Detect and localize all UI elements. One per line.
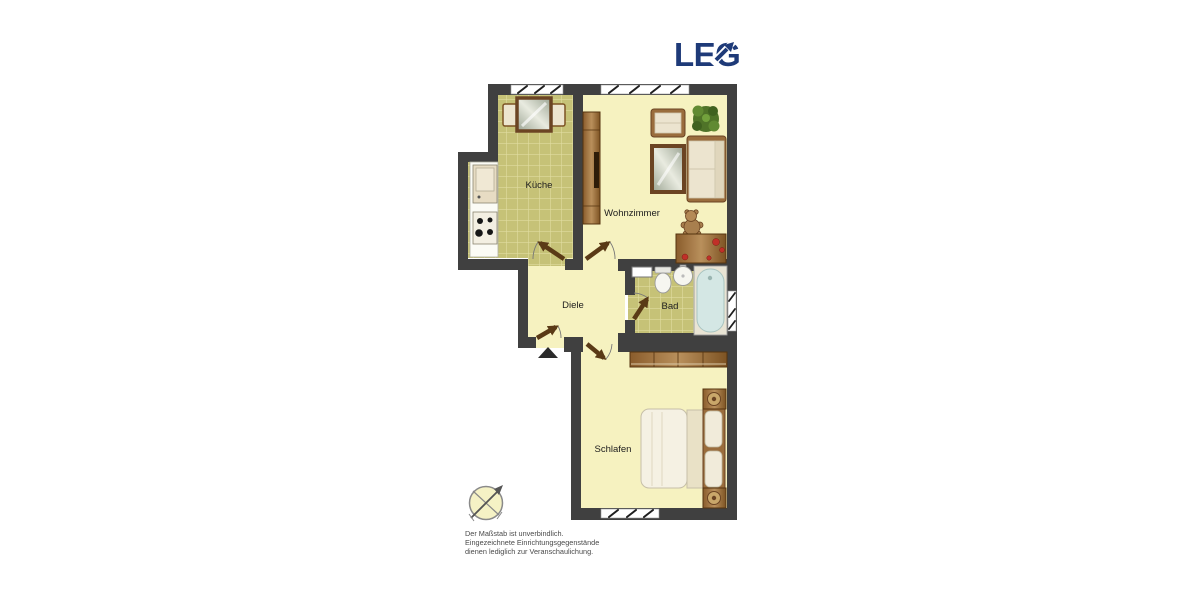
coffee-table — [652, 146, 684, 192]
nightstand-bottom — [703, 488, 726, 508]
armchair — [651, 109, 685, 137]
bedroom-wardrobe — [630, 352, 727, 367]
window-kueche — [511, 85, 563, 94]
window-bad — [728, 291, 736, 331]
stove — [473, 212, 497, 244]
bed-pillow — [705, 451, 722, 487]
window-schlafen — [601, 509, 659, 518]
room-label-schlafen: Schlafen — [595, 444, 632, 455]
wall-schlafen-pillar — [564, 337, 583, 352]
nightstand-top — [703, 389, 726, 409]
disclaimer-line-2: Eingezeichnete Einrichtungsgegenstände — [465, 538, 599, 547]
wall-left — [458, 152, 468, 270]
wall-kitchen-bottom — [458, 259, 528, 270]
bathroom-shelf — [632, 267, 652, 277]
sideboard — [676, 234, 726, 263]
room-label-kueche: Küche — [526, 180, 553, 191]
plant — [692, 106, 720, 133]
wall-diele-bottom-left — [518, 337, 536, 348]
wall-bad-schlafen — [618, 333, 737, 352]
kitchen-counter — [470, 162, 498, 257]
bed-pillow — [705, 411, 722, 447]
sofa — [687, 136, 726, 202]
wall-kitchen-left-upper — [488, 84, 498, 162]
wall-door-pillar — [565, 259, 583, 270]
kitchen-chair-right — [551, 104, 565, 126]
bathtub — [694, 266, 727, 335]
room-label-diele: Diele — [562, 300, 584, 311]
room-label-bad: Bad — [662, 301, 679, 312]
disclaimer: Der Maßstab ist unverbindlich. Eingezeic… — [465, 529, 599, 556]
window-wohnzimmer — [601, 85, 689, 94]
disclaimer-line-1: Der Maßstab ist unverbindlich. — [465, 529, 564, 538]
wall-kueche-wohnzimmer — [573, 94, 583, 270]
wall-schlafen-left — [571, 350, 581, 520]
floorplan: Küche Wohnzimmer Diele Bad Schlafen LEG … — [0, 0, 1200, 600]
leg-logo: LEG — [674, 36, 740, 73]
room-label-wohnzimmer: Wohnzimmer — [604, 208, 660, 219]
entrance-arrow-icon — [538, 347, 558, 358]
north-arrow-compass-icon — [469, 485, 503, 521]
kitchen-chair-left — [503, 104, 517, 126]
disclaimer-line-3: dienen lediglich zur Veranschaulichung. — [465, 547, 593, 556]
wardrobe — [583, 112, 600, 224]
wall-diele-left — [518, 259, 528, 348]
bed — [641, 407, 725, 490]
toilet — [655, 267, 671, 293]
floorplan-page: Küche Wohnzimmer Diele Bad Schlafen LEG … — [0, 0, 1200, 600]
bed-blanket — [687, 410, 704, 488]
kitchen-sink-unit — [473, 165, 497, 203]
bed-duvet — [641, 409, 687, 488]
